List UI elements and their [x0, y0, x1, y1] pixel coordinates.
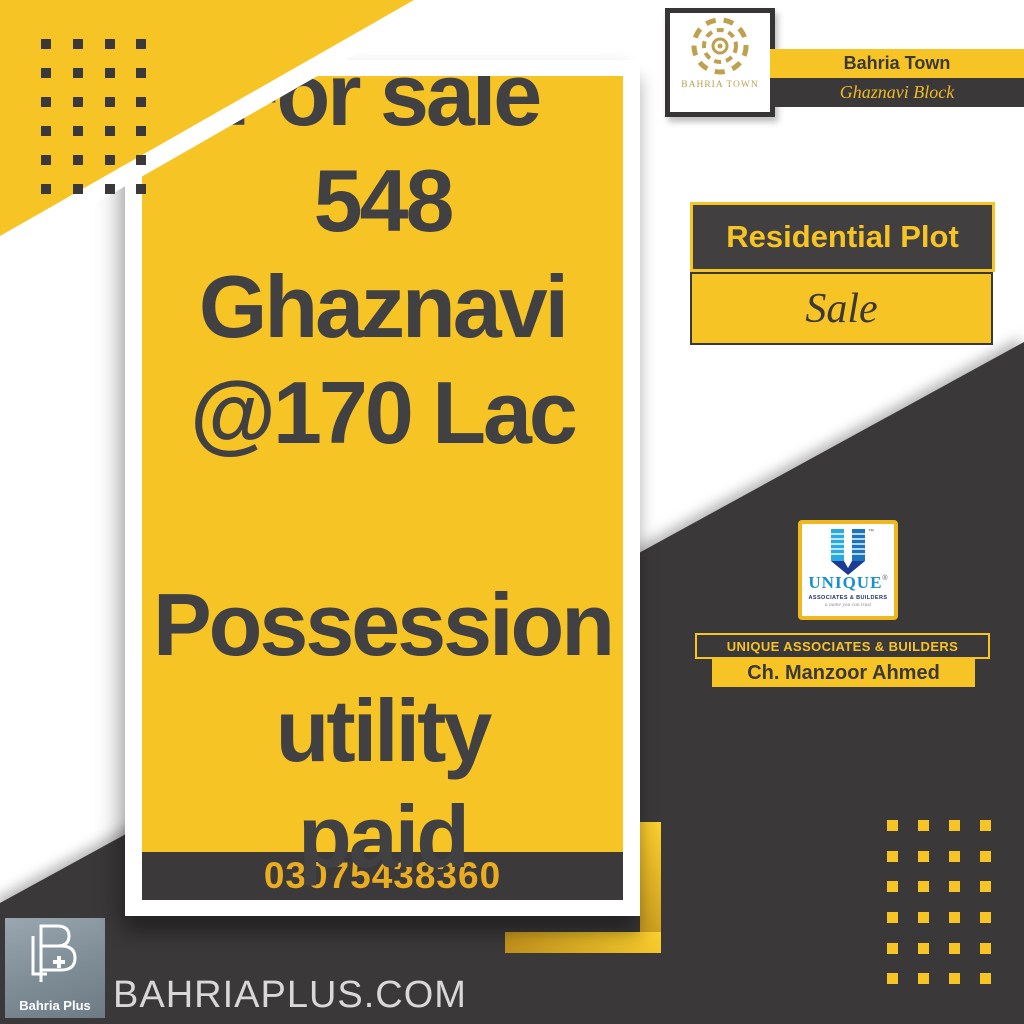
residential-plot-box: Residential Plot	[690, 202, 995, 272]
bahria-town-medallion-icon	[687, 13, 753, 79]
bahria-town-logo-box: BAHRIA TOWN	[665, 8, 775, 117]
bahria-plus-logo-box: Bahria Plus	[5, 918, 105, 1018]
listing-card: 03075438360 For sale548Ghaznavi@170 Lac …	[125, 60, 640, 916]
poster-canvas: 03075438360 For sale548Ghaznavi@170 Lac …	[0, 0, 1024, 1024]
agent-name-bar: Ch. Manzoor Ahmed	[712, 659, 975, 687]
card-headline: For sale548Ghaznavi@170 Lac Possessionut…	[142, 76, 623, 890]
card-headline-line	[142, 466, 623, 572]
unique-logo-word: UNIQUE	[808, 573, 882, 592]
bahria-town-title-bar: Bahria Town	[770, 49, 1024, 78]
registered-mark: ®	[882, 575, 887, 582]
unique-logo-tagline: a name you can trust	[825, 602, 871, 608]
tm-mark: ™	[868, 528, 874, 535]
unique-logo-box: ™ UNIQUE® ASSOCIATES & BUILDERS a name y…	[798, 520, 898, 620]
bahria-plus-label: Bahria Plus	[19, 998, 91, 1013]
bahria-town-logo-text: BAHRIA TOWN	[681, 80, 758, 90]
bahria-plus-monogram-icon	[23, 922, 87, 988]
ghaznavi-block-ribbon: Ghaznavi Block	[770, 78, 1024, 107]
sale-box: Sale	[690, 272, 993, 345]
website-url: BAHRIAPLUS.COM	[113, 974, 467, 1017]
listing-card-inner: 03075438360 For sale548Ghaznavi@170 Lac …	[142, 76, 623, 900]
yellow-bracket-horizontal	[505, 932, 661, 953]
unique-logo-subtitle: ASSOCIATES & BUILDERS	[809, 595, 888, 601]
card-headline-line: For sale	[142, 76, 623, 148]
card-headline-line: @170 Lac	[142, 360, 623, 466]
card-headline-line: 548	[142, 148, 623, 254]
card-headline-line: Ghaznavi	[142, 254, 623, 360]
card-headline-line: Possession	[142, 572, 623, 678]
card-headline-line: paid	[142, 784, 623, 890]
unique-towers-icon: ™	[815, 527, 881, 575]
agency-name-bar: UNIQUE ASSOCIATES & BUILDERS	[695, 633, 990, 659]
card-headline-line: utility	[142, 678, 623, 784]
